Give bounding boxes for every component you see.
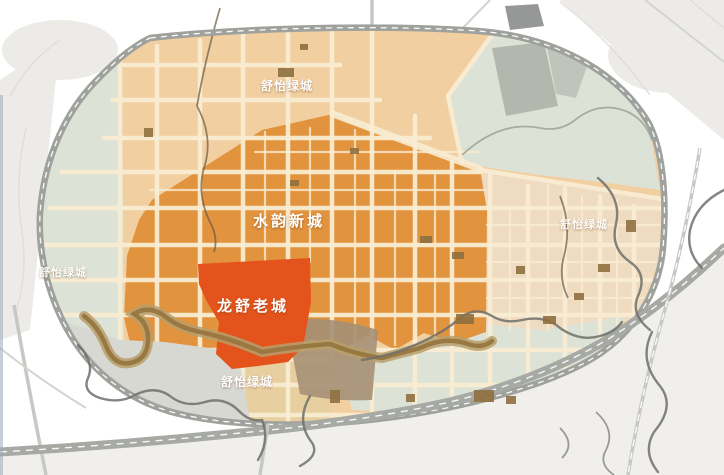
building-block bbox=[420, 236, 432, 243]
building-block bbox=[474, 390, 494, 402]
building-block bbox=[300, 44, 308, 50]
building-block bbox=[574, 293, 584, 300]
label-district-bottom: 舒怡绿城 bbox=[220, 374, 273, 389]
building-block bbox=[406, 394, 415, 402]
building-block bbox=[626, 220, 636, 232]
label-district-right: 舒怡绿城 bbox=[560, 217, 608, 231]
building-block bbox=[598, 264, 610, 272]
label-district-left: 舒怡绿城 bbox=[39, 265, 87, 279]
building-block bbox=[456, 314, 474, 324]
building-block bbox=[516, 266, 525, 274]
label-old-city: 龙舒老城 bbox=[216, 297, 289, 315]
building-block bbox=[144, 128, 153, 137]
building-block bbox=[452, 252, 464, 259]
building-block bbox=[330, 390, 340, 403]
label-new-city: 水韵新城 bbox=[253, 212, 325, 230]
building-block bbox=[278, 68, 294, 77]
edge-line bbox=[0, 95, 3, 475]
map-canvas: 水韵新城 龙舒老城 舒怡绿城 舒怡绿城 舒怡绿城 舒怡绿城 bbox=[0, 0, 724, 475]
building-block bbox=[506, 396, 516, 404]
building-block bbox=[350, 148, 359, 154]
building-block bbox=[290, 180, 299, 186]
building-block bbox=[543, 316, 556, 324]
label-district-top: 舒怡绿城 bbox=[260, 78, 313, 93]
planning-map: 水韵新城 龙舒老城 舒怡绿城 舒怡绿城 舒怡绿城 舒怡绿城 bbox=[0, 0, 724, 475]
gray-building bbox=[505, 4, 544, 30]
